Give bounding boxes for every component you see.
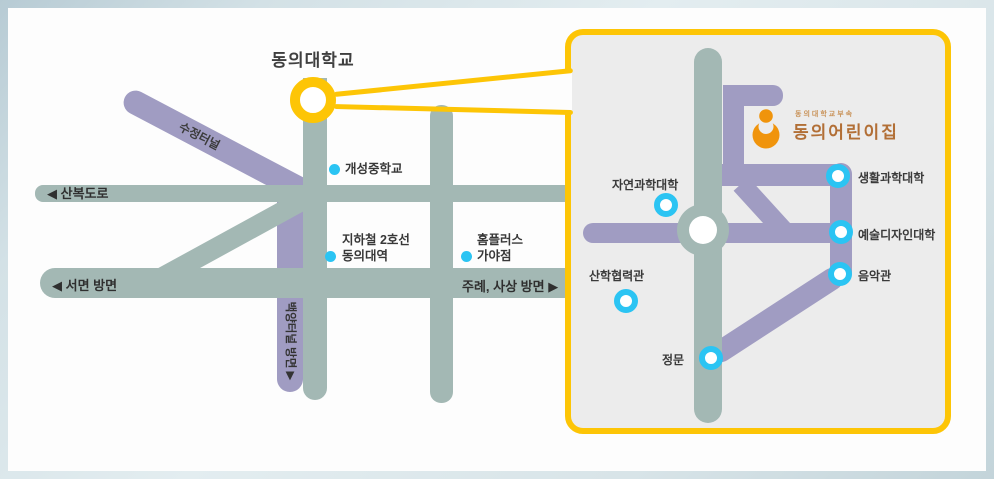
road-sanbok	[35, 185, 569, 202]
natural-science-marker	[654, 193, 678, 217]
main-gate-marker	[699, 346, 723, 370]
gaeseong-school-dot	[329, 164, 340, 175]
subway-station-label: 동의대역	[342, 249, 388, 265]
homeplus-branch-label: 가야점	[477, 249, 512, 265]
natural-science-label: 자연과학대학	[612, 176, 678, 193]
subway-line-label: 지하철 2호선	[342, 233, 410, 249]
homeplus-label: 홈플러스	[477, 233, 523, 249]
music-hall-marker	[828, 262, 852, 286]
university-title: 동의대학교	[238, 46, 388, 71]
music-hall-label: 음악관	[858, 267, 891, 284]
art-design-label: 예술디자인대학	[858, 226, 935, 243]
subway-station-dot	[325, 251, 336, 262]
art-design-marker	[829, 220, 853, 244]
jurye-sasang-label: 주례, 사상 방면 ▶	[462, 276, 558, 295]
life-science-label: 생활과학대학	[858, 169, 924, 186]
homeplus-dot	[461, 251, 472, 262]
industry-academic-label: 산학협력관	[589, 267, 644, 284]
industry-academic-marker	[614, 289, 638, 313]
road-vertical-university	[303, 78, 327, 400]
main-gate-label: 정문	[662, 351, 684, 368]
sanbok-road-label: ◀ 산복도로	[47, 186, 108, 202]
university-location-marker	[290, 77, 336, 123]
access-map: 수정터널 ◀ 산복도로 ◀ 서면 방면 주례, 사상 방면 ▶ 백양터널 방면 …	[0, 0, 994, 479]
daycare-person-icon	[746, 108, 788, 150]
road-vertical-east	[430, 105, 453, 403]
life-science-marker	[826, 164, 850, 188]
inset-road-top-stub	[723, 85, 783, 106]
daycare-logo: 동의대학교부속 동의어린이집	[746, 106, 951, 152]
inset-roundabout-center	[689, 216, 717, 244]
callout-mouth	[563, 72, 572, 111]
seomyeon-label: ◀ 서면 방면	[52, 275, 117, 294]
baekyang-direction-label: 백양터널 방면 ▶	[277, 271, 303, 411]
daycare-name-text: 동의어린이집	[793, 118, 899, 143]
gaeseong-school-label: 개성중학교	[345, 162, 403, 178]
